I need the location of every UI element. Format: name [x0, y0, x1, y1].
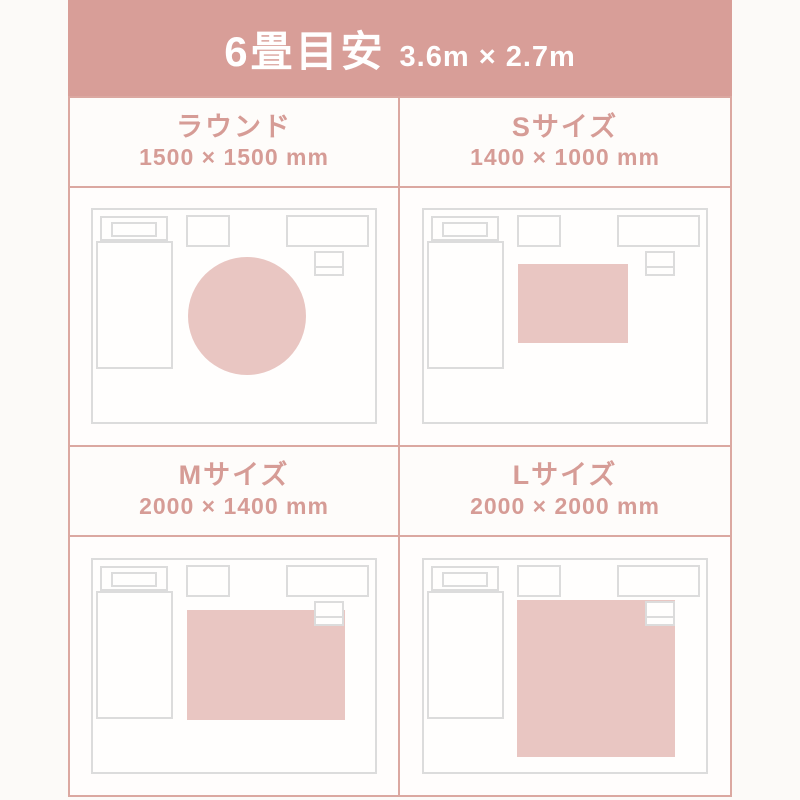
panel-round-title: ラウンド — [176, 111, 292, 143]
desk — [286, 215, 369, 247]
rug-m-size — [187, 610, 345, 720]
panel-s-header: Sサイズ 1400 × 1000 mm — [400, 98, 730, 188]
bed — [96, 241, 173, 369]
panel-round-dimensions: 1500 × 1500 mm — [139, 143, 329, 173]
panel-s-dimensions: 1400 × 1000 mm — [470, 143, 660, 173]
panel-round: ラウンド 1500 × 1500 mm — [70, 98, 400, 447]
panel-l-title: Lサイズ — [513, 459, 618, 491]
panel-l-dimensions: 2000 × 2000 mm — [470, 492, 660, 522]
panel-l-header: Lサイズ 2000 × 2000 mm — [400, 447, 730, 537]
rug-s-size — [518, 264, 628, 343]
room-diagram — [422, 558, 708, 774]
chair — [645, 601, 675, 626]
chair-backrest-line — [316, 616, 342, 618]
panel-m-size: Mサイズ 2000 × 1400 mm — [70, 447, 400, 796]
cabinet — [517, 215, 561, 247]
desk — [617, 215, 700, 247]
panel-s-title: Sサイズ — [512, 111, 618, 143]
room-diagram — [422, 208, 708, 424]
room-size-title: 6畳目安 — [224, 18, 385, 79]
bed — [427, 591, 504, 719]
chair — [645, 251, 675, 276]
bed-pillow — [442, 572, 488, 587]
panel-m-title: Mサイズ — [179, 459, 290, 491]
panel-s-body — [400, 188, 730, 445]
panel-l-body — [400, 537, 730, 796]
cabinet — [186, 565, 230, 597]
bed-pillow — [111, 572, 157, 587]
panel-m-body — [70, 537, 398, 796]
chair — [314, 601, 344, 626]
bed — [427, 241, 504, 369]
room-dimensions: 3.6m × 2.7m — [400, 41, 576, 74]
chair-backrest-line — [316, 266, 342, 268]
desk — [286, 565, 369, 597]
panel-l-size: Lサイズ 2000 × 2000 mm — [400, 447, 730, 796]
bed-pillow — [442, 222, 488, 237]
panel-round-body — [70, 188, 398, 445]
desk — [617, 565, 700, 597]
panel-s-size: Sサイズ 1400 × 1000 mm — [400, 98, 730, 447]
rug-round — [188, 257, 306, 375]
rug-size-guide: 6畳目安 3.6m × 2.7m ラウンド 1500 × 1500 mm — [0, 0, 800, 800]
chair-backrest-line — [647, 616, 673, 618]
header-text: 6畳目安 3.6m × 2.7m — [224, 18, 576, 79]
bed — [96, 591, 173, 719]
chair — [314, 251, 344, 276]
chair-backrest-line — [647, 266, 673, 268]
panel-m-header: Mサイズ 2000 × 1400 mm — [70, 447, 398, 537]
room-diagram — [91, 558, 377, 774]
cabinet — [186, 215, 230, 247]
panel-m-dimensions: 2000 × 1400 mm — [139, 492, 329, 522]
room-diagram — [91, 208, 377, 424]
cabinet — [517, 565, 561, 597]
header-band: 6畳目安 3.6m × 2.7m — [68, 0, 732, 96]
bed-pillow — [111, 222, 157, 237]
size-comparison-grid: ラウンド 1500 × 1500 mm S — [68, 96, 732, 797]
panel-round-header: ラウンド 1500 × 1500 mm — [70, 98, 398, 188]
